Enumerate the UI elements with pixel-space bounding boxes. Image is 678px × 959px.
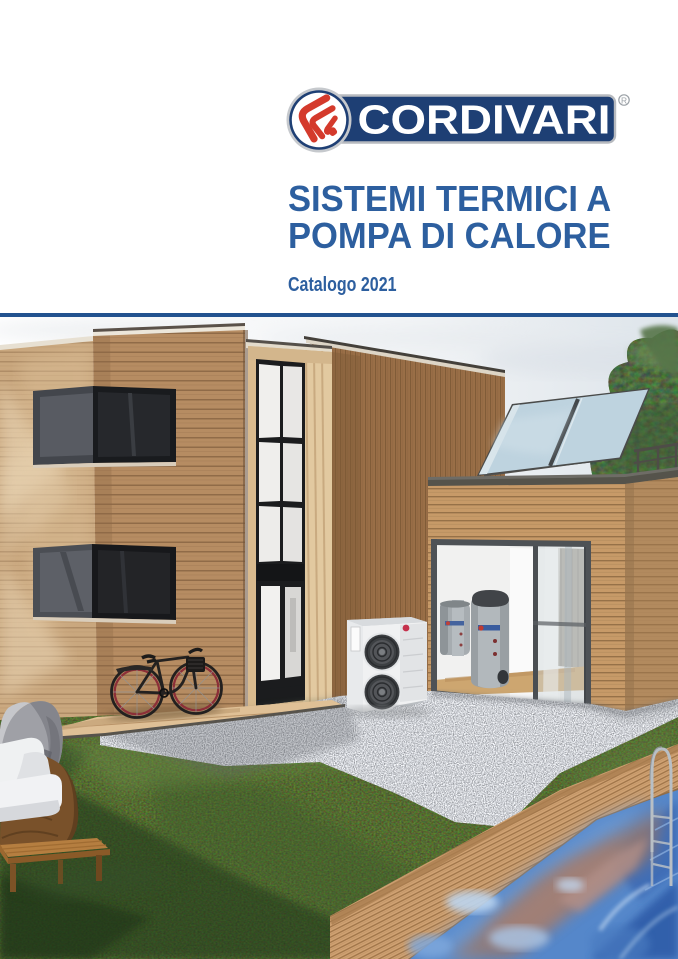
svg-text:CORDIVARI: CORDIVARI	[358, 97, 611, 143]
svg-text:R: R	[621, 96, 627, 106]
